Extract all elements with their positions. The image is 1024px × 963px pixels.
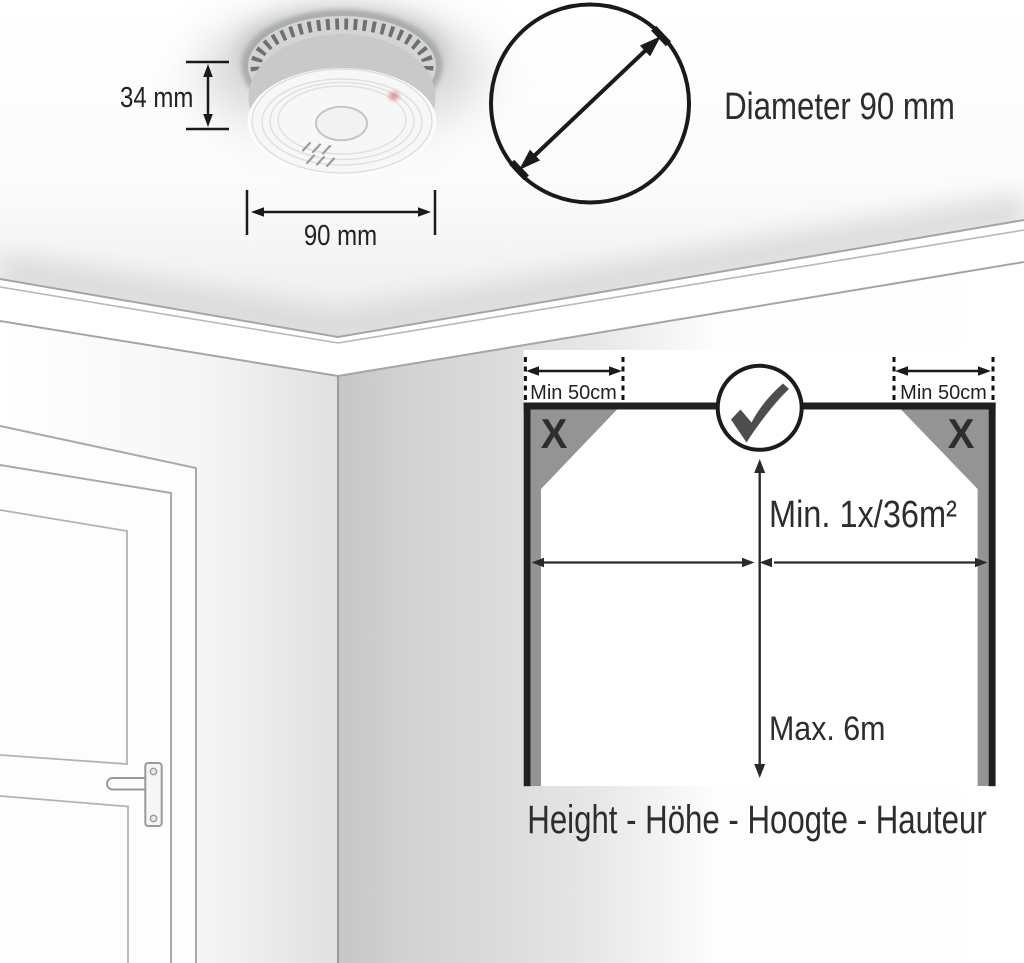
svg-text:Min 50cm: Min 50cm	[530, 382, 617, 404]
svg-text:90 mm: 90 mm	[304, 219, 377, 252]
svg-text:X: X	[541, 410, 568, 457]
svg-text:Min. 1x/36m²: Min. 1x/36m²	[769, 494, 957, 536]
svg-text:Height - Höhe - Hoogte - Haute: Height - Höhe - Hoogte - Hauteur	[527, 797, 986, 842]
svg-text:34 mm: 34 mm	[120, 81, 193, 114]
svg-text:X: X	[948, 410, 975, 457]
svg-text:Max. 6m: Max. 6m	[769, 709, 885, 747]
svg-text:Diameter 90 mm: Diameter 90 mm	[724, 86, 955, 128]
svg-text:Min 50cm: Min 50cm	[900, 382, 987, 404]
